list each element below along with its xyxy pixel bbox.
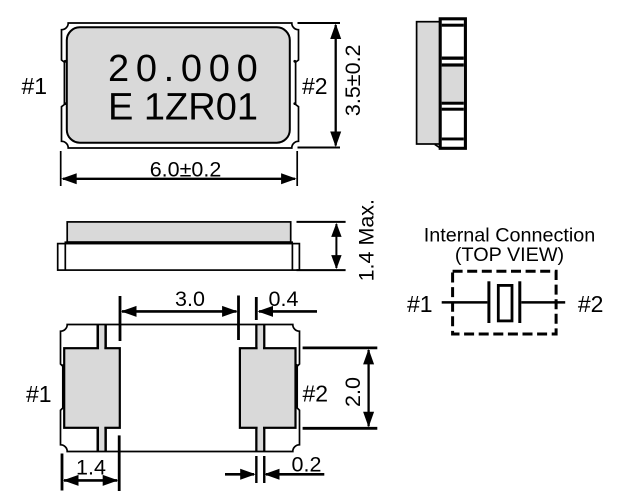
svg-text:#1: #1 [407, 291, 433, 317]
svg-text:#2: #2 [303, 381, 329, 407]
svg-text:#2: #2 [302, 73, 328, 99]
svg-text:E 1ZR01: E 1ZR01 [108, 87, 258, 129]
svg-text:1.4 Max.: 1.4 Max. [355, 199, 379, 281]
svg-text:#1: #1 [26, 381, 52, 407]
svg-text:#2: #2 [578, 291, 604, 317]
svg-text:2.0: 2.0 [341, 377, 365, 407]
svg-text:6.0±0.2: 6.0±0.2 [150, 158, 222, 182]
svg-text:0.2: 0.2 [292, 453, 322, 477]
svg-text:20.000: 20.000 [108, 48, 264, 90]
svg-text:3.0: 3.0 [175, 287, 205, 311]
svg-text:0.4: 0.4 [269, 287, 299, 311]
svg-text:(TOP VIEW): (TOP VIEW) [455, 244, 564, 266]
svg-text:3.5±0.2: 3.5±0.2 [341, 45, 365, 117]
svg-text:#1: #1 [22, 73, 48, 99]
svg-text:1.4: 1.4 [76, 456, 106, 480]
